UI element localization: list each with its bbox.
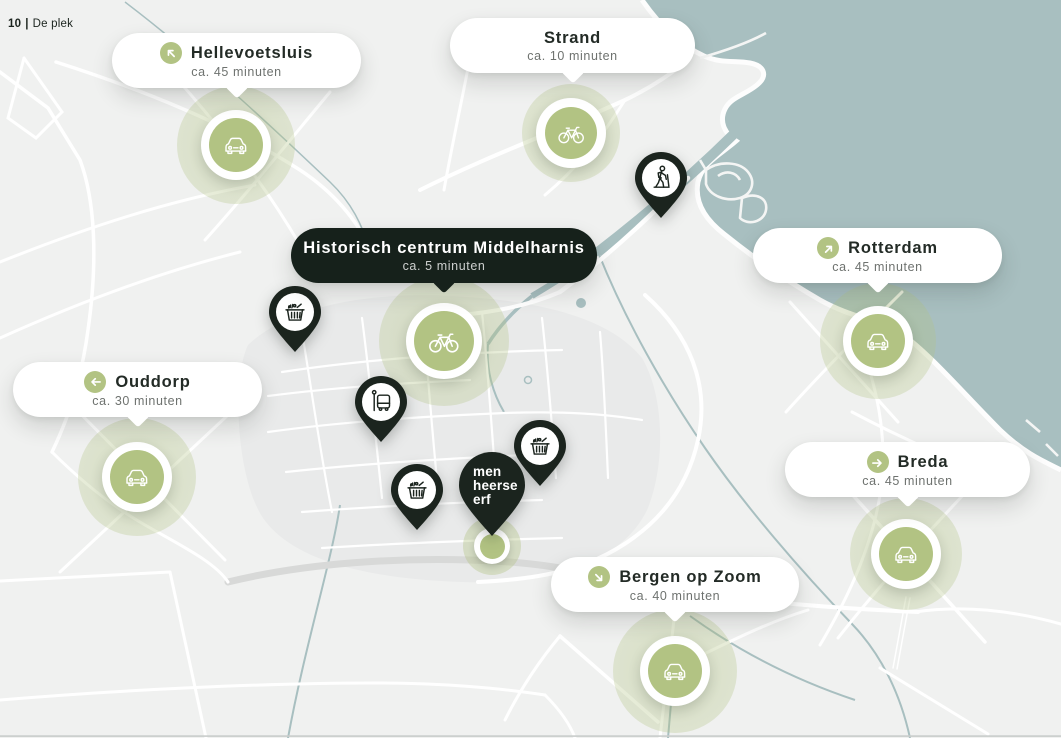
pin-hiking-trail — [635, 152, 687, 223]
tooltip-rotterdam: Rotterdam ca. 45 minuten — [753, 228, 1002, 283]
bicycle-icon — [545, 107, 597, 159]
page-section-title: De plek — [33, 18, 73, 30]
arrow-left-icon — [84, 371, 106, 393]
destination-subtitle: ca. 10 minuten — [527, 49, 617, 63]
marker-ouddorp — [102, 442, 172, 512]
pin-bus-stop — [355, 376, 407, 447]
destination-title: Breda — [898, 453, 949, 472]
destination-subtitle: ca. 30 minuten — [92, 394, 182, 408]
destination-title: Ouddorp — [115, 373, 190, 392]
arrow-down-right-icon — [588, 566, 610, 588]
page-label: 10|De plek — [8, 18, 73, 30]
marker-strand — [536, 98, 606, 168]
bicycle-icon — [414, 311, 474, 371]
pin-supermarket-center — [391, 464, 443, 535]
destination-subtitle: ca. 45 minuten — [191, 65, 281, 79]
pin-site-logo: men heerse erf — [459, 452, 525, 541]
arrow-up-right-icon — [817, 237, 839, 259]
pin-supermarket-west — [269, 286, 321, 357]
tooltip-breda: Breda ca. 45 minuten — [785, 442, 1030, 497]
brochure-map-page: { "page_label": { "number": "10", "separ… — [0, 0, 1061, 738]
tooltip-bergen-op-zoom: Bergen op Zoom ca. 40 minuten — [551, 557, 799, 612]
arrow-right-icon — [867, 451, 889, 473]
destination-title: Historisch centrum Middelharnis — [303, 239, 585, 258]
page-number: 10 — [8, 18, 21, 30]
destination-title: Rotterdam — [848, 239, 938, 258]
marker-historisch-centrum — [406, 303, 482, 379]
marker-hellevoetsluis — [201, 110, 271, 180]
destination-title: Strand — [544, 29, 601, 48]
car-icon — [110, 450, 164, 504]
destination-subtitle: ca. 5 minuten — [403, 259, 486, 273]
tooltip-historisch-centrum: Historisch centrum Middelharnis ca. 5 mi… — [291, 228, 597, 283]
destination-subtitle: ca. 45 minuten — [832, 260, 922, 274]
marker-bergen-op-zoom — [640, 636, 710, 706]
destination-subtitle: ca. 40 minuten — [630, 589, 720, 603]
marker-breda — [871, 519, 941, 589]
page-label-separator: | — [25, 18, 28, 30]
car-icon — [879, 527, 933, 581]
car-icon — [648, 644, 702, 698]
destination-title: Hellevoetsluis — [191, 44, 313, 63]
site-logo: men heerse erf — [473, 465, 518, 506]
tooltip-ouddorp: Ouddorp ca. 30 minuten — [13, 362, 262, 417]
marker-rotterdam — [843, 306, 913, 376]
car-icon — [209, 118, 263, 172]
tooltip-strand: Strand ca. 10 minuten — [450, 18, 695, 73]
tooltip-hellevoetsluis: Hellevoetsluis ca. 45 minuten — [112, 33, 361, 88]
destination-subtitle: ca. 45 minuten — [862, 474, 952, 488]
arrow-up-left-icon — [160, 42, 182, 64]
car-icon — [851, 314, 905, 368]
destination-title: Bergen op Zoom — [619, 568, 761, 587]
